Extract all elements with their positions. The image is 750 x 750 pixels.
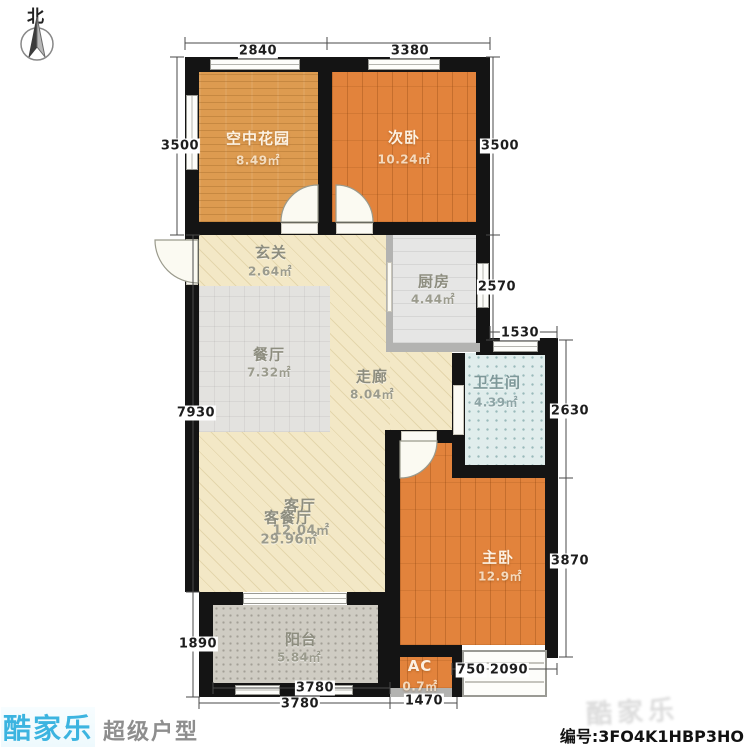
plan-serial-number: 编号:3FO4K1HBP3HO: [560, 723, 744, 747]
dim-right-upper: 3500: [480, 139, 520, 154]
kitchen-label: 厨房: [418, 271, 450, 292]
dim-right-kitchen: 2570: [477, 280, 517, 295]
brand-logo: 酷家乐: [1, 707, 95, 747]
door-arc-icons: [155, 185, 437, 478]
bedroom2-door-arc-icon: [336, 185, 373, 222]
dim-left-upper: 3500: [160, 139, 200, 154]
ac-area: 0.7㎡: [402, 678, 437, 695]
dim-right-master: 3870: [550, 554, 590, 569]
garden-label: 空中花园: [226, 128, 290, 149]
dining-label: 餐厅: [253, 344, 285, 365]
dining-area: 7.32㎡: [247, 364, 291, 381]
kitchen-area: 4.44㎡: [411, 291, 455, 308]
hallway-area: 2.64㎡: [248, 263, 292, 280]
garden-door-arc-icon: [281, 185, 318, 222]
dim-left-balcony: 1890: [178, 637, 218, 652]
compass-icon: [8, 2, 64, 72]
living-dining-area: 29.96㎡: [260, 529, 317, 548]
master-area: 12.9㎡: [478, 568, 522, 585]
dim-bath-top: 1530: [500, 326, 540, 341]
dim-right-bath: 2630: [550, 404, 590, 419]
bedroom2-label: 次卧: [388, 127, 420, 148]
master-door-arc-icon: [400, 441, 437, 478]
dim-top-garden: 2840: [238, 44, 278, 59]
balcony-area: 5.84㎡: [277, 649, 321, 666]
ac-label: AC: [408, 657, 433, 675]
bathroom-label: 卫生间: [473, 372, 521, 393]
dim-bottom-ac: 1470: [404, 694, 444, 709]
garden-area: 8.49㎡: [236, 152, 280, 169]
dim-master-left: 750: [456, 663, 487, 678]
compass: 北: [8, 2, 64, 72]
corridor-label: 走廊: [356, 366, 388, 387]
balcony-label: 阳台: [285, 629, 317, 650]
dim-top-bedroom2: 3380: [390, 44, 430, 59]
floor-plan: 北 空中花园 8.49㎡ 次卧 10.24㎡ 玄关 2.64㎡ 厨房 4.44㎡…: [0, 0, 750, 750]
hallway-label: 玄关: [255, 242, 287, 263]
bedroom2-area: 10.24㎡: [378, 151, 431, 168]
dim-master-right: 2090: [489, 663, 529, 678]
master-label: 主卧: [482, 547, 514, 568]
dim-balcony-inner: 3780: [295, 681, 335, 696]
corridor-area: 8.04㎡: [350, 386, 394, 403]
dim-balcony-outer: 3780: [280, 697, 320, 712]
bathroom-area: 4.39㎡: [474, 394, 518, 411]
entry-door-arc-icon: [155, 240, 198, 283]
dim-left-main: 7930: [176, 406, 216, 421]
brand-suffix: 超级户型: [103, 714, 199, 746]
